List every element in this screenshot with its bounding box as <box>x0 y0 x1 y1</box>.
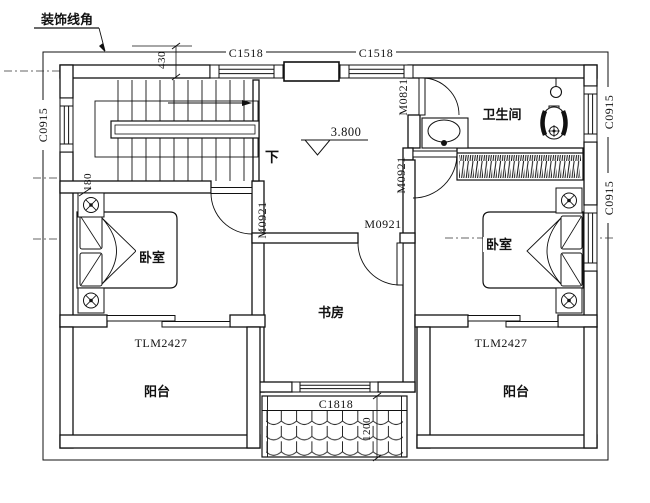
window-c0915-left <box>60 98 73 152</box>
room-label-balcony-left: 阳台 <box>144 384 170 399</box>
door-bathroom <box>419 78 459 115</box>
dim-label-430: 430 <box>156 51 168 69</box>
door-label-m0921-left: M0921 <box>255 201 269 238</box>
window-c1518-left <box>210 65 283 78</box>
stair-handrail <box>111 121 259 138</box>
staircase <box>95 80 259 181</box>
door-label-m0921-study: M0921 <box>364 217 401 231</box>
window-label-c0915-left: C0915 <box>36 108 50 143</box>
door-label-tlm2427-left: TLM2427 <box>135 336 188 350</box>
floor-plan-drawing: 装饰线角 C1518 C1518 C0915 C0915 C0915 C1818… <box>0 0 650 503</box>
window-label-c1818: C1818 <box>319 397 354 411</box>
stair-down-label: 下 <box>265 150 279 166</box>
door-label-m0921-right: M0921 <box>394 156 408 193</box>
window-c1518-right <box>340 65 413 78</box>
washbasin <box>422 118 468 148</box>
nightstand <box>556 188 582 213</box>
floor-drain <box>551 78 562 98</box>
window-label-c0915-bedroom: C0915 <box>602 181 616 216</box>
room-label-bedroom-right: 卧室 <box>486 237 512 252</box>
nightstand <box>78 288 104 313</box>
door-label-tlm2427-right: TLM2427 <box>475 336 528 350</box>
floor-plan-sheet: 装饰线角 C1518 C1518 C0915 C0915 C0915 C1818… <box>0 0 650 503</box>
toilet <box>542 106 567 139</box>
pier-block <box>284 62 339 81</box>
window-label-c1518-right: C1518 <box>359 46 394 60</box>
door-study <box>358 243 403 285</box>
window-label-c0915-bath: C0915 <box>602 95 616 130</box>
roof-tiles <box>266 411 403 457</box>
window-c0915-bath <box>584 86 597 142</box>
room-label-bedroom-left: 卧室 <box>139 250 165 265</box>
door-label-m0821: M0821 <box>396 78 410 115</box>
decor-note-label: 装饰线角 <box>40 12 93 27</box>
room-label-study: 书房 <box>318 305 344 320</box>
door-bedroom-right <box>413 151 457 198</box>
window-c0915-bedroom <box>584 205 597 271</box>
elevation-value: 3.800 <box>331 125 362 139</box>
window-label-c1518-left: C1518 <box>229 46 264 60</box>
sliding-door-left <box>107 316 230 328</box>
sliding-door-right <box>468 316 558 328</box>
dim-label-180: 180 <box>82 173 94 191</box>
decor-note-leader <box>34 28 105 52</box>
door-bedroom-left <box>211 188 252 235</box>
nightstand <box>78 193 104 217</box>
doors <box>211 78 459 285</box>
elevation-marker <box>301 140 368 155</box>
room-label-bathroom: 卫生间 <box>482 107 521 122</box>
nightstand <box>556 288 582 313</box>
window-c1818-study <box>292 382 378 392</box>
dim-label-1200: 1200 <box>361 417 373 441</box>
wardrobe <box>457 153 583 180</box>
room-label-balcony-right: 阳台 <box>503 384 529 399</box>
